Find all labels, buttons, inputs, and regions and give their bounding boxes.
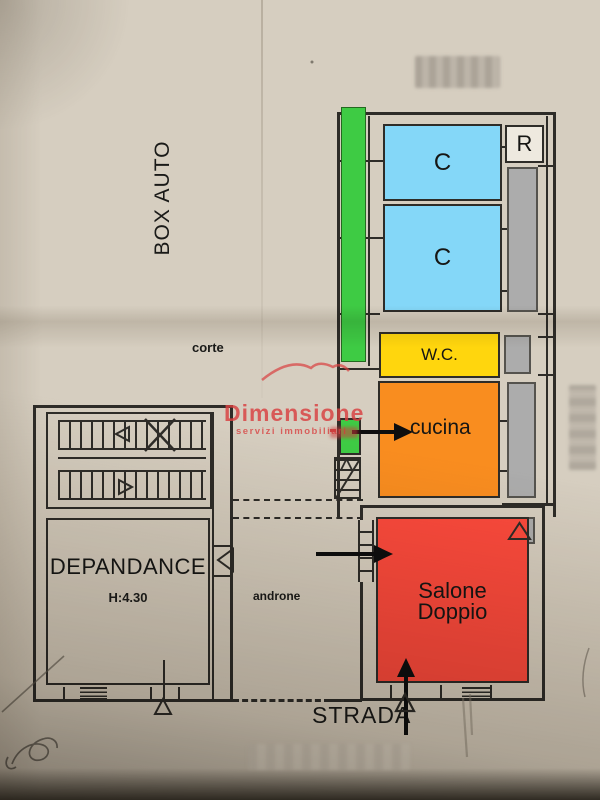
room-label-kitchen: cucina — [410, 416, 471, 440]
room-label-bedroom-1: C — [434, 149, 451, 177]
wall-tick — [500, 228, 507, 230]
wall-tick — [440, 685, 442, 701]
wall-tick — [150, 687, 152, 702]
balcony-strip — [341, 107, 366, 362]
wall-tick — [178, 687, 180, 702]
shaft-segment — [507, 167, 538, 312]
room-bedroom-2: C — [383, 204, 502, 312]
room-wc: W.C. — [379, 332, 500, 378]
wall-tick — [500, 470, 507, 472]
blurred-text-bottom — [248, 744, 410, 770]
room-storage: R — [505, 125, 544, 163]
paper-speck — [311, 61, 314, 64]
wall-tick — [502, 503, 556, 506]
wall-segment — [546, 116, 548, 506]
street-entrance-arrow-head — [397, 658, 415, 677]
wall-tick — [212, 575, 232, 577]
pencil-strokes — [463, 694, 472, 757]
wall-tick — [212, 545, 232, 547]
wall-segment — [212, 412, 214, 702]
room-bedroom-1: C — [383, 124, 502, 201]
room-depandance: DEPANDANCE H:4.30 — [46, 518, 210, 685]
wall-tick — [538, 165, 556, 167]
watermark-arc — [262, 364, 349, 380]
depandance-height-note: H:4.30 — [48, 590, 208, 605]
blurred-text-top — [415, 56, 500, 88]
corridor-dashed-line — [233, 517, 363, 519]
wall-tick — [390, 685, 392, 701]
area-label-androne: androne — [253, 589, 300, 603]
stair-landing — [58, 457, 206, 459]
floor-plan-photo: C C R W.C. cucina Salone Doppio — [0, 0, 600, 800]
area-label-strada: STRADA — [312, 702, 411, 729]
window-symbol — [80, 687, 107, 700]
agency-watermark: Dimensione servizi immobiliari — [224, 400, 384, 445]
window-ladder — [358, 520, 374, 582]
room-label-storage: R — [517, 131, 533, 157]
stair-flight-upper — [58, 420, 206, 450]
room-label-wc: W.C. — [421, 345, 458, 365]
wall-tick — [538, 313, 556, 315]
wall-tick — [500, 420, 507, 422]
room-label-living-2: Doppio — [378, 602, 527, 623]
wall-tick — [538, 336, 556, 338]
pencil-scribble — [12, 738, 57, 764]
kitchen-entrance-arrow — [352, 430, 398, 434]
wall-tick — [500, 146, 507, 148]
shaft-segment — [507, 382, 536, 498]
area-label-box-auto: BOX AUTO — [151, 95, 175, 301]
corridor-dashed-line — [233, 499, 363, 501]
wall-segment — [337, 368, 380, 370]
pencil-scribble — [6, 757, 16, 769]
room-label-depandance: DEPANDANCE — [50, 554, 206, 579]
stair-flight-lower — [58, 470, 206, 500]
pencil-curve — [583, 648, 589, 697]
kitchen-entrance-arrow-head — [394, 423, 413, 441]
living-entrance-arrow — [316, 552, 376, 556]
wall-tick — [538, 374, 556, 376]
room-label-bedroom-2: C — [434, 244, 451, 272]
street-entrance-arrow — [404, 674, 408, 735]
wall-segment — [368, 116, 370, 366]
wall-tick — [63, 687, 65, 702]
window-symbol — [462, 687, 492, 700]
blurred-text-right — [569, 385, 596, 470]
area-label-corte: corte — [192, 340, 224, 355]
paper-fold-line — [261, 0, 263, 398]
shaft-segment — [504, 335, 531, 374]
watermark-brand: Dimensione — [224, 400, 364, 427]
wall-tick — [500, 290, 507, 292]
small-stairs — [334, 457, 361, 499]
living-entrance-arrow-head — [374, 545, 393, 563]
watermark-illegible-fragment — [330, 427, 358, 438]
